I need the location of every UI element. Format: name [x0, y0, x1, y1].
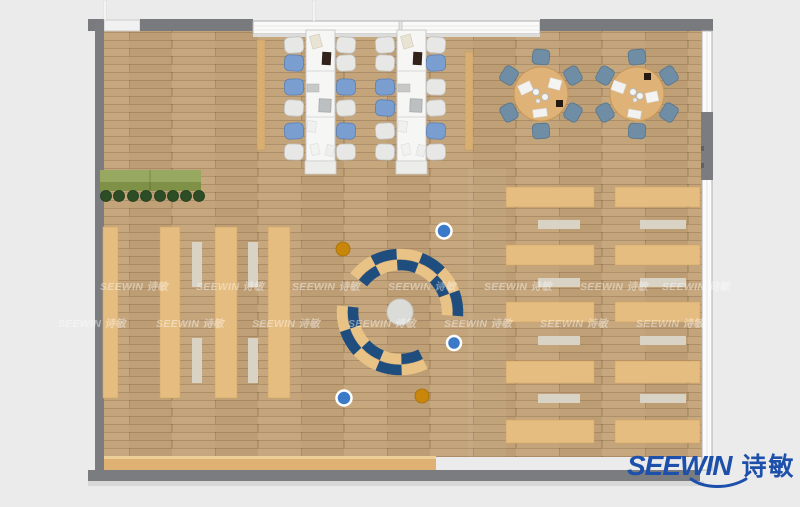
- bookshelf-column: [215, 227, 237, 398]
- floor-walkway-highlight: [468, 168, 506, 457]
- watermark-text: SEEWIN 诗敏: [540, 317, 609, 330]
- seewin-logo-swoosh: [689, 477, 749, 490]
- watermark-text: SEEWIN 诗敏: [484, 280, 553, 293]
- desk-panel: [398, 84, 410, 92]
- desk-chair-white: [336, 55, 356, 72]
- study-desk: [397, 30, 426, 161]
- aisle-strip: [538, 394, 580, 403]
- plant: [194, 191, 205, 202]
- door-top-left: [104, 20, 140, 31]
- aisle-strip: [192, 338, 202, 383]
- desk-chair-white: [284, 99, 304, 116]
- table-plate: [533, 89, 540, 96]
- desk-chair-blue: [336, 123, 356, 140]
- bookshelf-row: [506, 245, 594, 265]
- ottoman-orange: [415, 389, 429, 403]
- desk-chair-white: [375, 144, 395, 161]
- arc-bench-segment: [373, 254, 397, 261]
- desk-chair-white: [336, 36, 356, 53]
- arc-bench-segment: [397, 254, 421, 258]
- arc-bench-segment: [454, 292, 458, 316]
- desk-paper: [397, 121, 407, 133]
- arc-bench-segment: [397, 265, 417, 268]
- desk-chair-white: [375, 123, 395, 140]
- desk-chair-blue: [284, 55, 304, 72]
- bookshelf-row: [615, 245, 700, 265]
- desk-chair-blue: [336, 79, 356, 96]
- watermark-text: SEEWIN 诗敏: [252, 317, 321, 330]
- desk-book: [413, 52, 423, 65]
- table-chair: [628, 123, 646, 139]
- arc-bench-segment: [378, 366, 402, 371]
- seewin-logo-cn: 诗敏: [741, 453, 795, 481]
- watermark-text: SEEWIN 诗敏: [636, 317, 705, 330]
- bookshelf-column: [160, 227, 180, 398]
- desk-chair-white: [426, 79, 446, 96]
- bookshelf-row: [506, 361, 594, 383]
- arc-bench-segment: [382, 355, 402, 359]
- bookshelf-row: [506, 420, 594, 443]
- ottoman-blue: [337, 391, 352, 406]
- watermark-text: SEEWIN 诗敏: [580, 280, 649, 293]
- arc-bench-segment: [402, 364, 426, 370]
- desk-end-cabinet: [305, 161, 336, 174]
- plant: [168, 191, 179, 202]
- watermark-text: SEEWIN 诗敏: [662, 280, 731, 293]
- desk-chair-blue: [284, 123, 304, 140]
- watermark-text: SEEWIN 诗敏: [348, 317, 417, 330]
- desk-laptop: [410, 99, 422, 112]
- desk-chair-white: [284, 36, 304, 53]
- desk-chair-white: [426, 99, 446, 116]
- table-paper: [645, 91, 659, 103]
- watermark-text: SEEWIN 诗敏: [388, 280, 457, 293]
- desk-chair-white: [336, 99, 356, 116]
- desk-chair-white: [426, 36, 446, 53]
- aisle-strip: [248, 338, 258, 383]
- seewin-logo: SEEWIN诗敏: [627, 451, 795, 480]
- watermark-text: SEEWIN 诗敏: [196, 280, 265, 293]
- desk-chair-white: [375, 55, 395, 72]
- desk-chair-white: [336, 144, 356, 161]
- door-hinge: [701, 163, 704, 168]
- exterior-line: [313, 0, 315, 21]
- desk-laptop: [319, 99, 331, 112]
- aisle-strip: [538, 336, 580, 345]
- arc-bench-segment: [444, 296, 447, 316]
- ottoman-blue: [437, 224, 452, 239]
- bookshelf-row: [615, 361, 700, 383]
- desk-chair-blue: [375, 99, 395, 116]
- table-chair: [532, 123, 550, 139]
- table-book: [556, 100, 563, 107]
- wall-top-segment-right: [540, 19, 713, 31]
- aisle-strip: [538, 220, 580, 229]
- ottoman-orange: [336, 242, 350, 256]
- arc-bench-segment: [401, 354, 420, 359]
- table-paper: [533, 108, 548, 118]
- desk-paper: [306, 121, 316, 133]
- bookshelf-column: [103, 227, 118, 398]
- table-cup: [633, 98, 637, 102]
- desk-chair-blue: [284, 79, 304, 96]
- desk-chair-white: [375, 36, 395, 53]
- bookshelf-column: [268, 227, 290, 398]
- arc-bench-segment: [378, 265, 397, 270]
- plant: [141, 191, 152, 202]
- bookshelf-row: [615, 420, 700, 443]
- wall-top-segment-left: [140, 19, 253, 31]
- door-hinge: [701, 146, 704, 151]
- arc-bench-segment: [342, 306, 345, 330]
- plant: [128, 191, 139, 202]
- bookshelf-row: [506, 187, 594, 207]
- aisle-strip: [640, 394, 686, 403]
- table-plate: [542, 94, 549, 101]
- desk-chair-blue: [426, 55, 446, 72]
- plant: [181, 191, 192, 202]
- plant: [155, 191, 166, 202]
- standing-board: [465, 52, 473, 150]
- desk-book: [322, 52, 332, 65]
- aisle-strip: [640, 336, 686, 345]
- floor-plan-drawing: SEEWIN 诗敏SEEWIN 诗敏SEEWIN 诗敏SEEWIN 诗敏SEEW…: [0, 0, 800, 507]
- desk-chair-white: [426, 144, 446, 161]
- wall-bottom-shadow: [88, 481, 704, 486]
- bench-bottom-highlight: [104, 456, 436, 459]
- table-plate: [630, 89, 637, 96]
- bookshelf-row: [615, 187, 700, 207]
- watermark-text: SEEWIN 诗敏: [58, 317, 127, 330]
- desk-end-cabinet: [396, 161, 427, 174]
- desk-panel: [307, 84, 319, 92]
- study-desk: [306, 30, 335, 161]
- desk-chair-white: [284, 144, 304, 161]
- table-chair: [532, 49, 550, 65]
- exterior-line: [104, 0, 106, 20]
- watermark-text: SEEWIN 诗敏: [292, 280, 361, 293]
- plant: [101, 191, 112, 202]
- table-plate: [637, 93, 644, 100]
- table-cup: [536, 99, 540, 103]
- standing-board: [257, 40, 265, 150]
- ottoman-blue: [447, 336, 461, 350]
- watermark-text: SEEWIN 诗敏: [156, 317, 225, 330]
- desk-chair-blue: [375, 79, 395, 96]
- wall-bottom: [88, 470, 700, 481]
- table-chair: [628, 49, 646, 66]
- watermark-text: SEEWIN 诗敏: [100, 280, 169, 293]
- wall-left: [95, 19, 104, 471]
- floor-plan-canvas: SEEWIN 诗敏SEEWIN 诗敏SEEWIN 诗敏SEEWIN 诗敏SEEW…: [0, 0, 800, 507]
- aisle-strip: [640, 220, 686, 229]
- plant: [114, 191, 125, 202]
- desk-chair-blue: [426, 123, 446, 140]
- watermark-text: SEEWIN 诗敏: [444, 317, 513, 330]
- table-book: [644, 73, 651, 80]
